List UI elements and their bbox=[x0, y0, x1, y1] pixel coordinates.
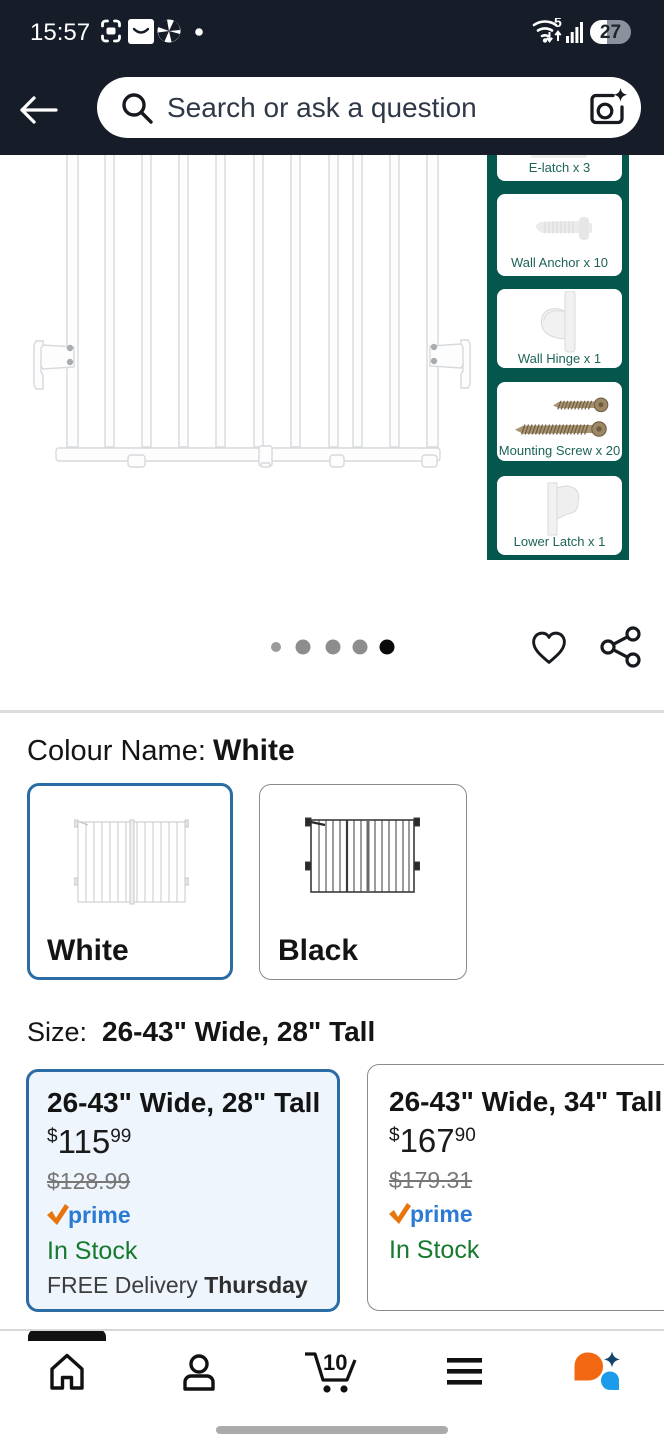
svg-text:5: 5 bbox=[554, 18, 562, 30]
svg-text:prime: prime bbox=[68, 1202, 131, 1228]
svg-text:10: 10 bbox=[323, 1350, 347, 1375]
svg-text:prime: prime bbox=[410, 1201, 473, 1227]
